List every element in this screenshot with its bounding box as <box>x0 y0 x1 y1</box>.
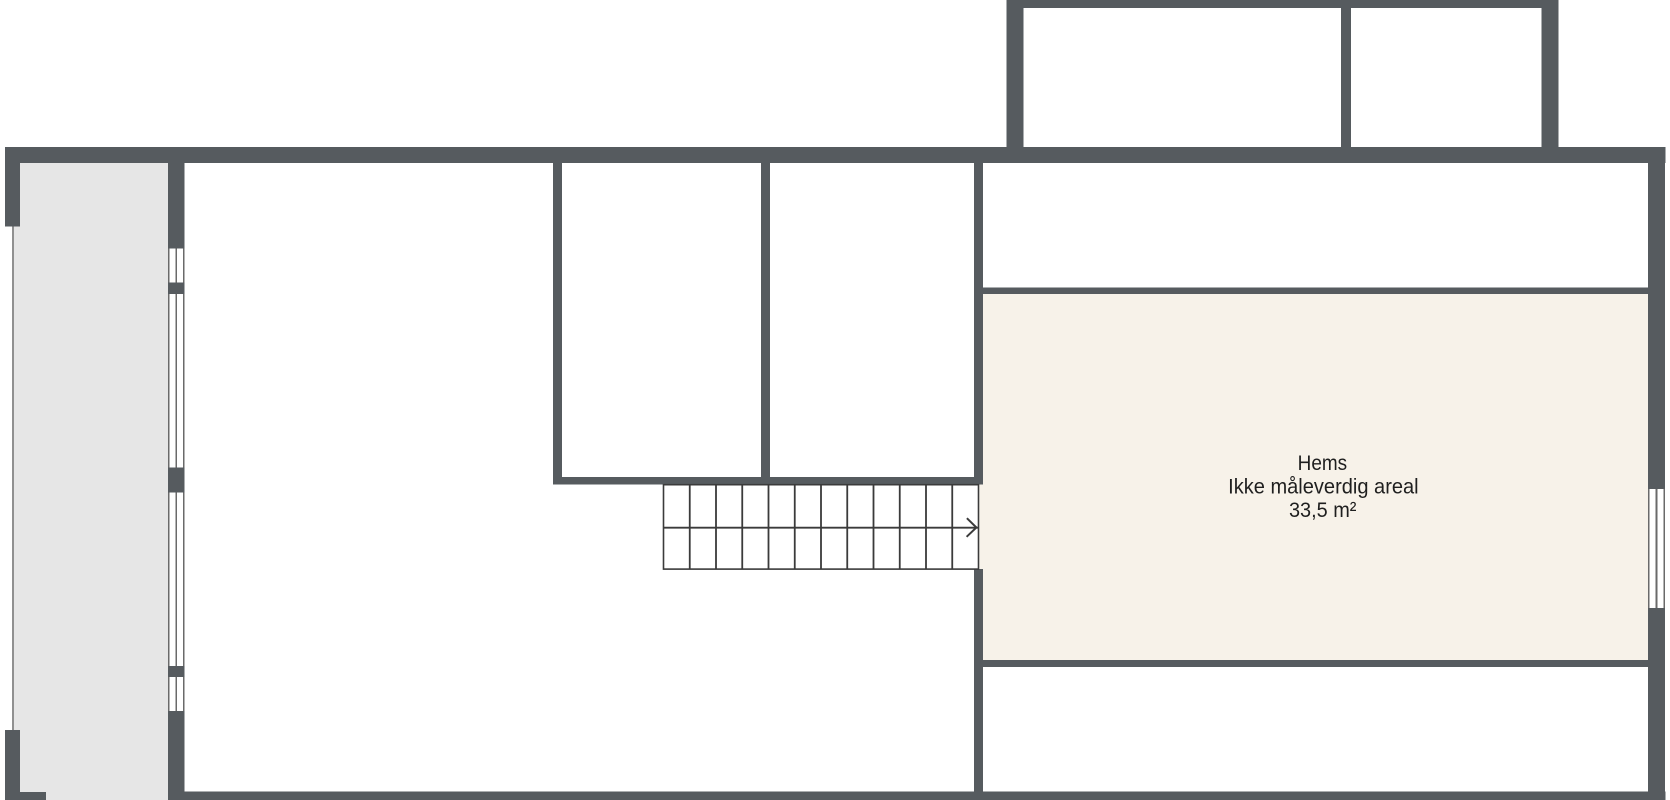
svg-text:Ikke måleverdig areal: Ikke måleverdig areal <box>1228 474 1419 498</box>
svg-text:33,5 m²: 33,5 m² <box>1289 498 1357 522</box>
svg-text:Hems: Hems <box>1298 451 1348 475</box>
